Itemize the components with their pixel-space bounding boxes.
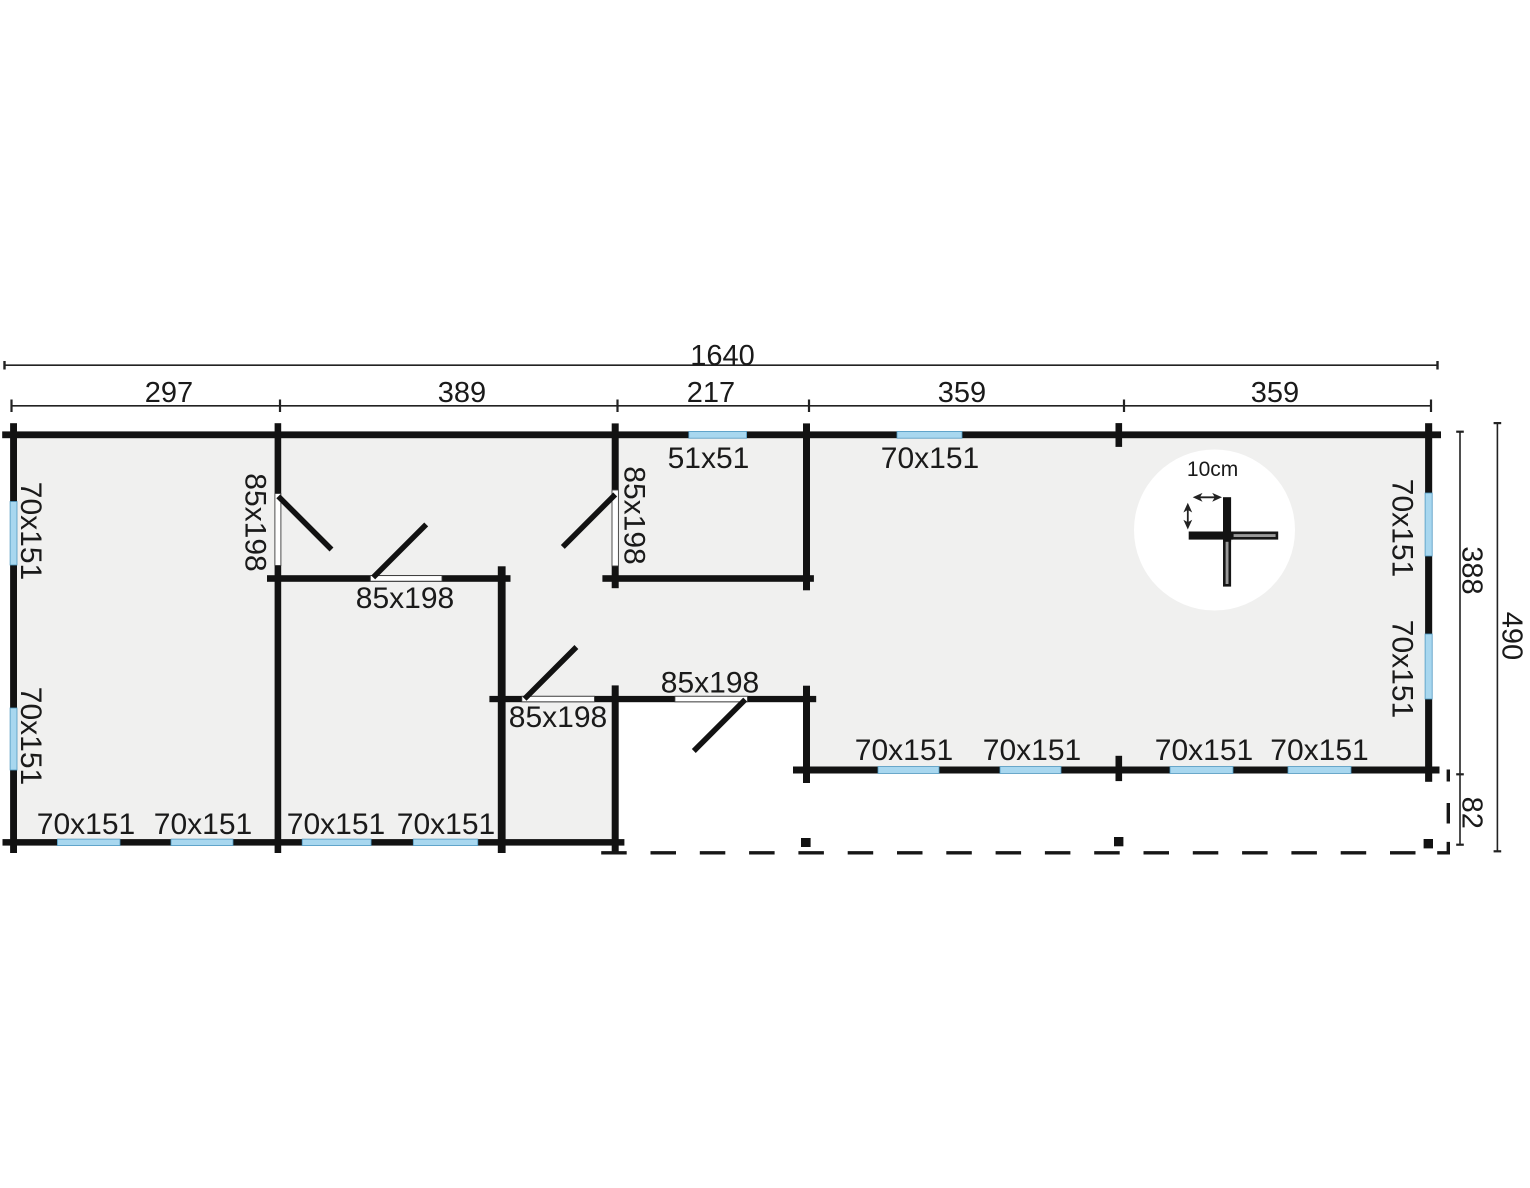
svg-text:359: 359	[938, 377, 986, 409]
svg-text:70x151: 70x151	[1386, 620, 1419, 718]
svg-text:297: 297	[145, 377, 193, 409]
svg-text:70x151: 70x151	[1270, 734, 1368, 767]
svg-text:70x151: 70x151	[14, 687, 47, 785]
svg-text:51x51: 51x51	[668, 442, 750, 475]
svg-text:70x151: 70x151	[154, 808, 252, 841]
svg-text:388: 388	[1456, 546, 1488, 594]
svg-text:85x198: 85x198	[661, 667, 759, 700]
svg-text:490: 490	[1495, 612, 1527, 660]
svg-text:70x151: 70x151	[983, 734, 1081, 767]
svg-text:70x151: 70x151	[1386, 479, 1419, 577]
svg-text:1640: 1640	[690, 340, 755, 372]
svg-text:85x198: 85x198	[509, 701, 607, 734]
svg-text:85x198: 85x198	[356, 582, 454, 615]
svg-text:85x198: 85x198	[239, 473, 272, 571]
svg-text:70x151: 70x151	[397, 808, 495, 841]
svg-text:85x198: 85x198	[618, 466, 651, 564]
svg-text:359: 359	[1251, 377, 1299, 409]
svg-text:82: 82	[1456, 797, 1488, 829]
svg-text:70x151: 70x151	[287, 808, 385, 841]
svg-text:70x151: 70x151	[881, 442, 979, 475]
svg-text:70x151: 70x151	[14, 482, 47, 580]
svg-text:70x151: 70x151	[37, 808, 135, 841]
svg-text:70x151: 70x151	[855, 734, 953, 767]
svg-text:217: 217	[687, 377, 735, 409]
svg-text:70x151: 70x151	[1155, 734, 1253, 767]
svg-text:10cm: 10cm	[1187, 458, 1238, 481]
svg-text:389: 389	[438, 377, 486, 409]
